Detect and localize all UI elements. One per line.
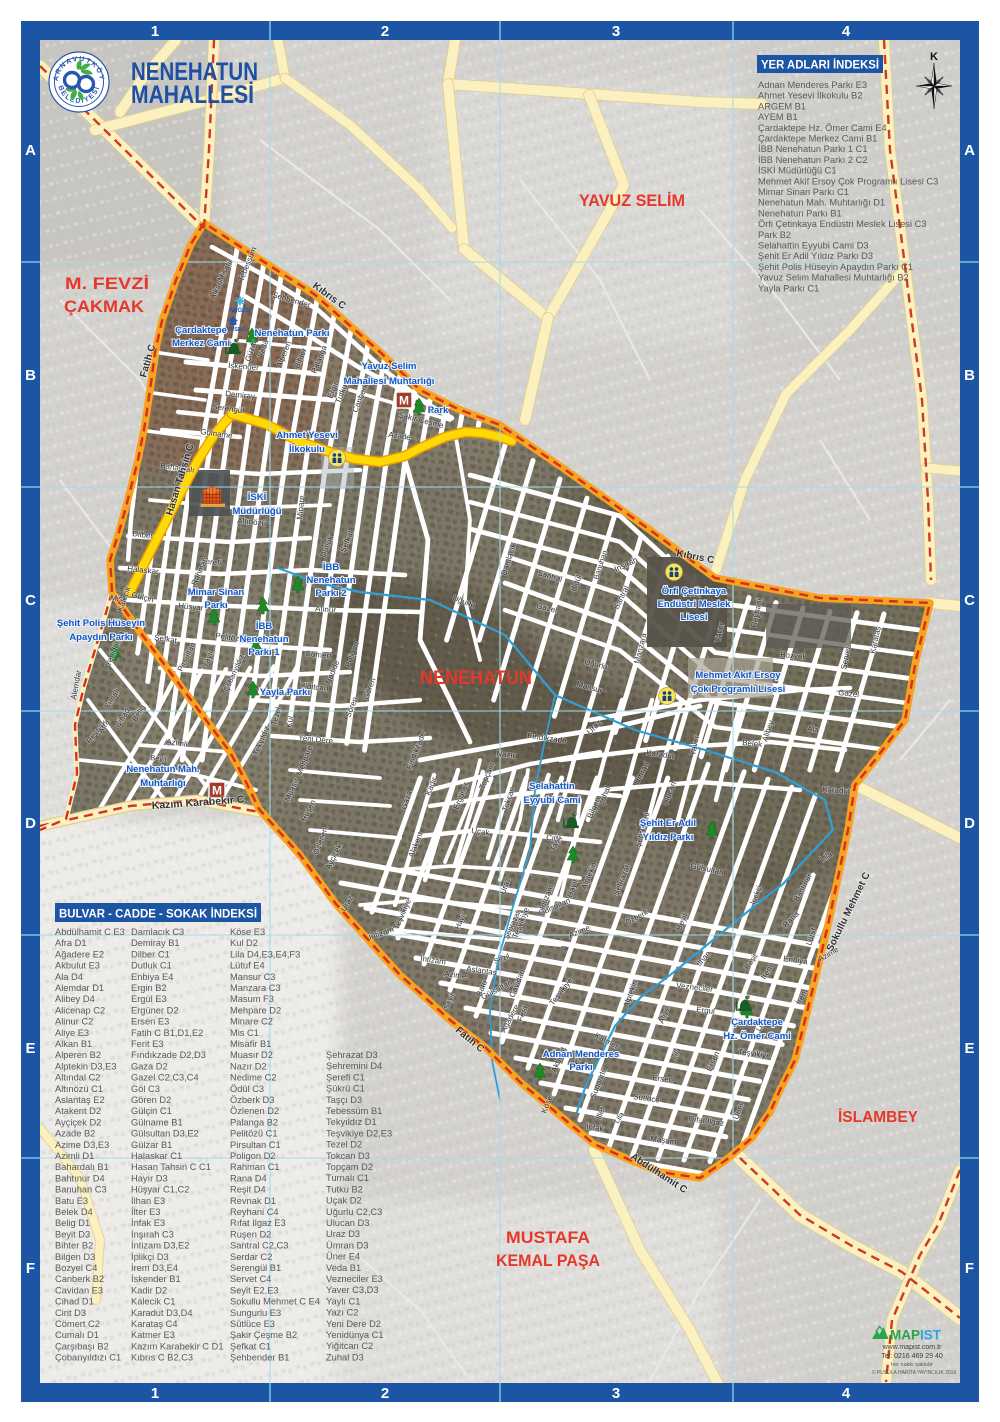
svg-text:K: K: [930, 51, 938, 63]
svg-text:Şehrazat D3: Şehrazat D3: [326, 1050, 378, 1060]
svg-text:MAHALLESİ: MAHALLESİ: [131, 81, 254, 109]
svg-text:Ulucan D3: Ulucan D3: [326, 1218, 369, 1228]
svg-text:Rahman C1: Rahman C1: [230, 1162, 280, 1172]
svg-text:Gülzar B1: Gülzar B1: [131, 1140, 172, 1150]
svg-text:Yiğitcan C2: Yiğitcan C2: [326, 1341, 373, 1351]
svg-text:3: 3: [612, 23, 620, 40]
svg-text:YER ADLARI İNDEKSİ: YER ADLARI İNDEKSİ: [761, 57, 879, 72]
svg-text:Ödül C3: Ödül C3: [230, 1084, 264, 1094]
svg-text:Alperen B2: Alperen B2: [55, 1050, 101, 1060]
svg-text:Cihad D1: Cihad D1: [55, 1297, 94, 1307]
svg-text:Şerefi C1: Şerefi C1: [326, 1072, 365, 1082]
svg-text:ARGEM B1: ARGEM B1: [758, 101, 806, 111]
svg-text:Atakent D2: Atakent D2: [55, 1106, 101, 1116]
svg-text:Kadir D2: Kadir D2: [131, 1285, 167, 1295]
svg-text:Hayır D3: Hayır D3: [131, 1173, 168, 1183]
svg-text:Rana D4: Rana D4: [230, 1173, 267, 1183]
svg-text:2: 2: [381, 23, 389, 40]
svg-text:Sungurlu E3: Sungurlu E3: [230, 1308, 281, 1318]
svg-text:Ala D4: Ala D4: [55, 972, 83, 982]
svg-text:Ersen E3: Ersen E3: [131, 1017, 169, 1027]
svg-text:Dilber C1: Dilber C1: [131, 949, 170, 959]
svg-text:D: D: [964, 815, 975, 832]
svg-text:İSKİ Müdürlüğü C1: İSKİ Müdürlüğü C1: [758, 166, 837, 176]
svg-text:Apaydın Parkı: Apaydın Parkı: [69, 632, 132, 643]
svg-text:Muhtarlığı: Muhtarlığı: [140, 778, 185, 789]
svg-text:Gaza D2: Gaza D2: [131, 1061, 168, 1071]
svg-text:Nenehatun Parkı: Nenehatun Parkı: [255, 328, 330, 339]
svg-text:Ruşen D2: Ruşen D2: [230, 1229, 271, 1239]
svg-text:Serdar C2: Serdar C2: [230, 1252, 272, 1262]
svg-text:Lisesi: Lisesi: [681, 612, 708, 623]
svg-text:Alemdar D1: Alemdar D1: [55, 983, 104, 993]
svg-text:Fındıkzade D2,D3: Fındıkzade D2,D3: [131, 1050, 206, 1060]
svg-text:Sokullu Mehmet C E4: Sokullu Mehmet C E4: [230, 1297, 320, 1307]
svg-text:Pirsultan C1: Pirsultan C1: [230, 1140, 281, 1150]
svg-text:Müdürlüğü: Müdürlüğü: [232, 506, 281, 517]
svg-text:Bozyel C4: Bozyel C4: [55, 1263, 97, 1273]
svg-text:Ergül E3: Ergül E3: [131, 994, 167, 1004]
svg-text:Göl C3: Göl C3: [131, 1084, 160, 1094]
svg-text:B: B: [964, 367, 975, 384]
svg-text:Alptekin D3,E3: Alptekin D3,E3: [55, 1061, 117, 1071]
svg-text:Örfi Çetinkaya Endüstri Meslek: Örfi Çetinkaya Endüstri Meslek Lisesi C3: [758, 219, 926, 229]
svg-text:Şehit Polis Hüseyin: Şehit Polis Hüseyin: [57, 618, 145, 629]
svg-text:Nenehatun Mah. Muhtarlığı D1: Nenehatun Mah. Muhtarlığı D1: [758, 198, 885, 208]
svg-text:Ayçiçek D2: Ayçiçek D2: [55, 1117, 101, 1127]
svg-text:Adnan Menderes: Adnan Menderes: [543, 1049, 620, 1060]
svg-text:Mansur C3: Mansur C3: [230, 972, 275, 982]
svg-text:© PUSULA HARİTA YAYINCILIK 201: © PUSULA HARİTA YAYINCILIK 2016: [872, 1369, 957, 1376]
svg-text:Çardaktepe Merkez Cami B1: Çardaktepe Merkez Cami B1: [758, 134, 877, 144]
svg-text:2: 2: [381, 1385, 389, 1402]
svg-text:Örfi Çetinkaya: Örfi Çetinkaya: [662, 586, 727, 597]
svg-text:4: 4: [842, 1385, 851, 1402]
svg-text:Ala: Ala: [807, 724, 820, 735]
svg-text:Yazı C2: Yazı C2: [326, 1308, 358, 1318]
svg-text:Servet C4: Servet C4: [230, 1274, 271, 1284]
svg-text:Ümran D3: Ümran D3: [326, 1240, 368, 1250]
svg-text:Nenehatun Parkı B1: Nenehatun Parkı B1: [758, 208, 842, 218]
svg-text:BULVAR - CADDE - SOKAK İNDEKSİ: BULVAR - CADDE - SOKAK İNDEKSİ: [59, 906, 257, 921]
svg-text:İlter E3: İlter E3: [131, 1207, 160, 1217]
svg-text:İntizam D3,E2: İntizam D3,E2: [131, 1241, 189, 1251]
svg-text:Mimar Sinan Parkı C1: Mimar Sinan Parkı C1: [758, 187, 849, 197]
svg-text:Alicenap C2: Alicenap C2: [55, 1005, 105, 1015]
svg-text:Tezel D2: Tezel D2: [326, 1140, 362, 1150]
svg-text:Yenidünya C1: Yenidünya C1: [326, 1330, 384, 1340]
svg-text:NENEHATUN: NENEHATUN: [420, 667, 532, 689]
svg-text:Ferit E3: Ferit E3: [131, 1039, 164, 1049]
svg-text:C: C: [25, 592, 36, 609]
svg-text:Kalecik C1: Kalecik C1: [131, 1297, 175, 1307]
svg-text:Ağadere E2: Ağadere E2: [55, 949, 104, 959]
svg-text:Endüstri Meslek: Endüstri Meslek: [658, 599, 732, 610]
svg-text:Çarşıbaşı B2: Çarşıbaşı B2: [55, 1341, 109, 1351]
svg-text:A: A: [964, 142, 975, 159]
svg-text:F: F: [26, 1260, 35, 1277]
svg-text:Hasan Tahsin C C1: Hasan Tahsin C C1: [131, 1162, 211, 1172]
svg-text:Ergin B2: Ergin B2: [131, 983, 167, 993]
svg-text:Teşvikiye D2,E3: Teşvikiye D2,E3: [326, 1128, 392, 1138]
svg-text:Parkı 2: Parkı 2: [315, 588, 346, 599]
svg-text:Minare C2: Minare C2: [230, 1017, 273, 1027]
svg-text:Yayla Parkı: Yayla Parkı: [260, 687, 310, 698]
svg-text:Alkan B1: Alkan B1: [55, 1039, 92, 1049]
svg-text:Tel: 0216 469 29 40: Tel: 0216 469 29 40: [881, 1353, 943, 1360]
svg-text:Eyyubi Cami: Eyyubi Cami: [523, 795, 580, 806]
svg-text:Gülçin C1: Gülçin C1: [131, 1106, 172, 1116]
svg-text:Yeni Dere D2: Yeni Dere D2: [326, 1319, 381, 1329]
svg-text:Hüşyar C1,C2: Hüşyar C1,C2: [131, 1185, 189, 1195]
svg-text:Adnan Menderes Parkı E3: Adnan Menderes Parkı E3: [758, 80, 867, 90]
svg-text:Mehmet Akif Ersoy Çok Programl: Mehmet Akif Ersoy Çok Programlı Lisesi C…: [758, 176, 938, 186]
svg-text:M. FEVZİ: M. FEVZİ: [65, 275, 149, 293]
svg-text:Serengül B1: Serengül B1: [230, 1263, 281, 1273]
svg-text:Çok Programlı Lisesi: Çok Programlı Lisesi: [691, 684, 786, 695]
svg-text:Veda B1: Veda B1: [326, 1263, 361, 1273]
svg-text:Yaylı C1: Yaylı C1: [326, 1296, 360, 1306]
svg-text:İlkokulu: İlkokulu: [289, 444, 325, 455]
svg-text:ARGEM: ARGEM: [229, 308, 251, 314]
svg-text:Gülsultan D3,E2: Gülsultan D3,E2: [131, 1129, 199, 1139]
svg-text:Nenehatun: Nenehatun: [306, 575, 355, 586]
svg-text:ÇAKMAK: ÇAKMAK: [64, 298, 144, 316]
svg-text:Nenehatun Mah.: Nenehatun Mah.: [126, 764, 199, 775]
svg-text:Köse E3: Köse E3: [230, 927, 265, 937]
svg-text:Kazım Karabekir C D1: Kazım Karabekir C D1: [131, 1341, 223, 1351]
svg-text:AYEM B1: AYEM B1: [758, 112, 798, 122]
svg-text:Taşçı D3: Taşçı D3: [326, 1095, 362, 1105]
svg-text:Karataş C4: Karataş C4: [131, 1319, 178, 1329]
svg-text:Çardaktepe: Çardaktepe: [175, 325, 227, 336]
svg-text:Üner E4: Üner E4: [326, 1252, 360, 1262]
svg-text:Parkı: Parkı: [569, 1062, 592, 1073]
svg-text:Belek D4: Belek D4: [55, 1207, 93, 1217]
svg-text:Merkez Cami: Merkez Cami: [172, 338, 230, 349]
svg-text:Çardaktepe: Çardaktepe: [731, 1017, 783, 1028]
svg-text:1: 1: [151, 1385, 159, 1402]
svg-text:Özlenen D2: Özlenen D2: [230, 1106, 279, 1116]
svg-text:Gazel C2,C3,C4: Gazel C2,C3,C4: [131, 1073, 199, 1083]
svg-text:Misafir B1: Misafir B1: [230, 1039, 271, 1049]
svg-text:Rıfat Ilgaz E3: Rıfat Ilgaz E3: [230, 1218, 286, 1228]
svg-text:Akbulut E3: Akbulut E3: [55, 961, 100, 971]
svg-text:D: D: [25, 815, 36, 832]
svg-text:Çobanyıldızı C1: Çobanyıldızı C1: [55, 1353, 121, 1363]
svg-text:3: 3: [612, 1385, 620, 1402]
svg-text:Mimar Sinan: Mimar Sinan: [188, 587, 245, 598]
svg-text:Mis C1: Mis C1: [230, 1028, 259, 1038]
svg-text:Halaskar C1: Halaskar C1: [131, 1151, 182, 1161]
svg-text:İSLAMBEY: İSLAMBEY: [838, 1109, 919, 1126]
svg-text:Gülname B1: Gülname B1: [131, 1117, 183, 1127]
svg-text:Bilgen D3: Bilgen D3: [55, 1252, 95, 1262]
svg-text:İrem D3,E4: İrem D3,E4: [131, 1263, 178, 1273]
svg-text:Beyit D3: Beyit D3: [55, 1229, 90, 1239]
svg-text:MAPIST: MAPIST: [890, 1328, 942, 1343]
svg-text:Azimli D1: Azimli D1: [55, 1151, 94, 1161]
svg-text:A: A: [25, 142, 36, 159]
svg-text:Reyhani C4: Reyhani C4: [230, 1207, 279, 1217]
svg-text:İlhan E3: İlhan E3: [131, 1196, 165, 1206]
svg-text:Afra D1: Afra D1: [55, 938, 87, 948]
svg-text:Tekyıldız D1: Tekyıldız D1: [326, 1117, 377, 1127]
svg-text:Mahallesi Muhtarlığı: Mahallesi Muhtarlığı: [344, 376, 435, 387]
svg-text:YAVUZ SELİM: YAVUZ SELİM: [579, 191, 685, 210]
svg-text:Topçam D2: Topçam D2: [326, 1162, 373, 1172]
svg-text:Batu E3: Batu E3: [55, 1196, 88, 1206]
svg-text:Selahattin Eyyubi Cami D3: Selahattin Eyyubi Cami D3: [758, 241, 869, 251]
svg-text:Damlacık C3: Damlacık C3: [131, 927, 184, 937]
svg-text:Seyit E2,E3: Seyit E2,E3: [230, 1285, 279, 1295]
svg-text:Ahmet Yesevi İlkokulu B2: Ahmet Yesevi İlkokulu B2: [758, 91, 862, 101]
svg-text:Tebessüm B1: Tebessüm B1: [326, 1106, 382, 1116]
svg-text:Uğurlu C2,C3: Uğurlu C2,C3: [326, 1207, 382, 1217]
svg-text:Özberk D3: Özberk D3: [230, 1095, 274, 1105]
svg-text:Yıldız Parkı: Yıldız Parkı: [643, 832, 694, 843]
svg-text:Tokcan D3: Tokcan D3: [326, 1151, 370, 1161]
svg-text:Enbiya E4: Enbiya E4: [131, 972, 173, 982]
svg-text:Yayla Parkı C1: Yayla Parkı C1: [758, 283, 819, 293]
svg-text:Nedime C2: Nedime C2: [230, 1073, 277, 1083]
svg-text:Lila D4,E3,E4,F3: Lila D4,E3,E4,F3: [230, 949, 300, 959]
svg-text:Bahardalı B1: Bahardalı B1: [55, 1162, 109, 1172]
svg-text:Şükrü C1: Şükrü C1: [326, 1084, 365, 1094]
svg-text:Turnalı C1: Turnalı C1: [326, 1173, 369, 1183]
svg-text:Uçak D2: Uçak D2: [326, 1196, 362, 1206]
svg-text:Sütlüce E3: Sütlüce E3: [230, 1319, 275, 1329]
svg-text:Zuhal D3: Zuhal D3: [326, 1352, 364, 1362]
svg-text:Azime D3,E3: Azime D3,E3: [55, 1140, 109, 1150]
svg-text:Manzara C3: Manzara C3: [230, 983, 281, 993]
svg-text:İBB Nenehatun Parkı 2 C2: İBB Nenehatun Parkı 2 C2: [758, 155, 868, 165]
svg-text:Yavuz Selim: Yavuz Selim: [362, 361, 417, 372]
svg-text:İskender B1: İskender B1: [131, 1274, 181, 1284]
svg-text:Reşit D4: Reşit D4: [230, 1185, 266, 1195]
svg-text:Azade B2: Azade B2: [55, 1129, 95, 1139]
svg-text:Aslantaş E2: Aslantaş E2: [55, 1095, 105, 1105]
svg-text:B: B: [25, 367, 36, 384]
svg-text:C: C: [964, 592, 975, 609]
svg-text:Abdülhamit C E3: Abdülhamit C E3: [55, 927, 125, 937]
svg-text:Kıbrıs C B2,C3: Kıbrıs C B2,C3: [131, 1353, 193, 1363]
svg-text:Gören D2: Gören D2: [131, 1095, 171, 1105]
svg-text:Şakir Çeşme B2: Şakir Çeşme B2: [230, 1330, 297, 1340]
svg-text:Mehpare D2: Mehpare D2: [230, 1005, 281, 1015]
svg-text:Pelitözü C1: Pelitözü C1: [230, 1129, 278, 1139]
svg-text:Parkı: Parkı: [204, 600, 227, 611]
svg-text:MUSTAFA: MUSTAFA: [506, 1228, 590, 1247]
svg-text:Vezneciler E3: Vezneciler E3: [326, 1274, 383, 1284]
svg-text:Masum F3: Masum F3: [230, 994, 274, 1004]
svg-text:Demiray B1: Demiray B1: [131, 938, 180, 948]
svg-text:Cavidan E3: Cavidan E3: [55, 1285, 103, 1295]
svg-text:Hz. Ömer Cami: Hz. Ömer Cami: [723, 1031, 791, 1042]
svg-text:Altındal C2: Altındal C2: [55, 1073, 100, 1083]
svg-text:Palanga B2: Palanga B2: [230, 1117, 278, 1127]
svg-text:Cumalı D1: Cumalı D1: [55, 1330, 99, 1340]
svg-text:Fatih C B1,D1,E2: Fatih C B1,D1,E2: [131, 1028, 203, 1038]
svg-text:M: M: [399, 394, 409, 408]
svg-text:İplikçi D3: İplikçi D3: [131, 1252, 169, 1262]
svg-text:1: 1: [151, 23, 159, 40]
svg-text:her hakkı saklıdır: her hakkı saklıdır: [891, 1362, 933, 1368]
svg-text:Şehit Er Adil: Şehit Er Adil: [640, 818, 696, 829]
svg-text:Aliye E3: Aliye E3: [55, 1028, 89, 1038]
svg-text:Kul D2: Kul D2: [230, 938, 258, 948]
svg-text:Şehit Er Adil Yıldız Parkı D3: Şehit Er Adil Yıldız Parkı D3: [758, 251, 873, 261]
svg-text:Cömert C2: Cömert C2: [55, 1319, 100, 1329]
svg-text:Mehmet Akif Ersoy: Mehmet Akif Ersoy: [695, 670, 781, 681]
svg-text:İBB: İBB: [256, 621, 273, 632]
svg-text:Şehit Polis Hüseyin Apaydın Pa: Şehit Polis Hüseyin Apaydın Parkı C1: [758, 262, 913, 272]
svg-text:Bihter B2: Bihter B2: [55, 1241, 93, 1251]
svg-text:Yavuz Selim Mahallesi Muhtarlı: Yavuz Selim Mahallesi Muhtarlığı B2: [758, 273, 909, 283]
svg-text:F: F: [965, 1260, 974, 1277]
svg-text:Ahmet Yesevi: Ahmet Yesevi: [276, 430, 338, 441]
svg-text:İBB Nenehatun Parkı 1 C1: İBB Nenehatun Parkı 1 C1: [758, 144, 868, 154]
svg-text:Şehremini D4: Şehremini D4: [326, 1061, 382, 1071]
svg-text:İSKİ: İSKİ: [248, 492, 266, 503]
svg-text:İnşırah C3: İnşırah C3: [131, 1229, 174, 1239]
svg-text:Çardaktepe Hz. Ömer Cami E4: Çardaktepe Hz. Ömer Cami E4: [758, 123, 887, 133]
svg-text:Santral C2,C3: Santral C2,C3: [230, 1241, 288, 1251]
svg-text:Nenehatun: Nenehatun: [239, 634, 288, 645]
svg-text:E: E: [964, 1040, 974, 1057]
svg-text:Uraz D3: Uraz D3: [326, 1229, 360, 1239]
svg-text:Ergüner D2: Ergüner D2: [131, 1005, 179, 1015]
svg-text:İBB: İBB: [323, 562, 340, 573]
svg-text:Bahtınur D4: Bahtınur D4: [55, 1173, 105, 1183]
svg-text:www.mapist.com.tr: www.mapist.com.tr: [882, 1344, 942, 1351]
svg-text:Park: Park: [428, 405, 449, 416]
svg-text:Katmer E3: Katmer E3: [131, 1330, 175, 1340]
svg-text:İnfak E3: İnfak E3: [131, 1218, 165, 1228]
svg-text:BUSEM: BUSEM: [227, 327, 245, 333]
svg-text:Beyit: Beyit: [150, 753, 168, 764]
svg-text:Alinur C2: Alinur C2: [55, 1017, 93, 1027]
svg-text:Nazır D2: Nazır D2: [230, 1061, 267, 1071]
svg-text:Şehbender B1: Şehbender B1: [230, 1353, 289, 1363]
svg-text:Revnak D1: Revnak D1: [230, 1196, 276, 1206]
svg-text:Canberk B2: Canberk B2: [55, 1274, 104, 1284]
svg-text:Poligon D2: Poligon D2: [230, 1151, 275, 1161]
svg-text:4: 4: [842, 23, 851, 40]
svg-text:Alınur: Alınur: [315, 604, 337, 615]
svg-text:Selahattin: Selahattin: [529, 781, 575, 792]
svg-text:Parkı 1: Parkı 1: [248, 647, 280, 658]
svg-text:Banuhan C3: Banuhan C3: [55, 1185, 107, 1195]
svg-text:Dutluk C1: Dutluk C1: [131, 961, 172, 971]
svg-text:E: E: [25, 1040, 35, 1057]
svg-text:Muasır D2: Muasır D2: [230, 1050, 273, 1060]
svg-text:Lütuf E4: Lütuf E4: [230, 961, 265, 971]
svg-text:Altınözü C1: Altınözü C1: [55, 1084, 103, 1094]
svg-text:Yaver C3,D3: Yaver C3,D3: [326, 1285, 379, 1295]
svg-text:Park B2: Park B2: [758, 230, 791, 240]
svg-text:Şefkat C1: Şefkat C1: [230, 1341, 271, 1351]
svg-text:KEMAL PAŞA: KEMAL PAŞA: [496, 1251, 600, 1270]
svg-text:Alibey D4: Alibey D4: [55, 994, 95, 1004]
svg-text:Belig D1: Belig D1: [55, 1218, 90, 1228]
svg-text:Cirit D3: Cirit D3: [55, 1308, 86, 1318]
svg-text:Karadut D3,D4: Karadut D3,D4: [131, 1308, 193, 1318]
svg-text:Tutku B2: Tutku B2: [326, 1184, 363, 1194]
